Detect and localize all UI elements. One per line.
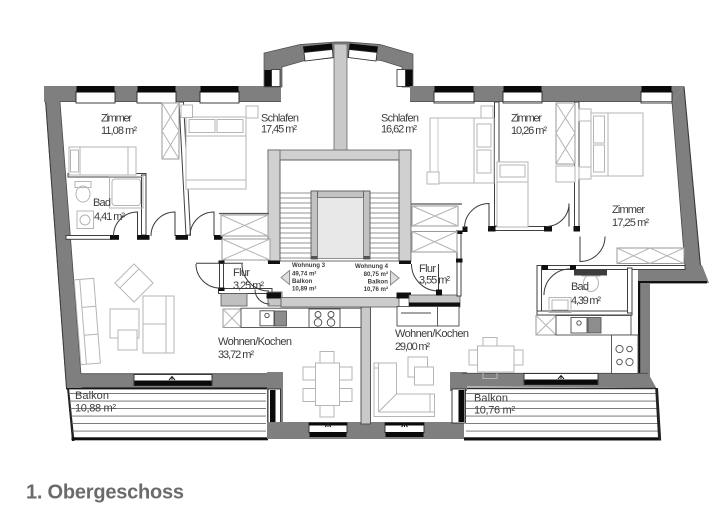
- svg-text:11,08 m²: 11,08 m²: [101, 125, 137, 137]
- svg-text:3,25 m²: 3,25 m²: [233, 280, 264, 292]
- svg-text:3,55 m²: 3,55 m²: [419, 275, 450, 287]
- svg-text:10,88 m²: 10,88 m²: [75, 403, 116, 415]
- svg-text:Balkon: Balkon: [368, 279, 389, 286]
- svg-text:29,00 m²: 29,00 m²: [395, 341, 430, 353]
- svg-text:16,62 m²: 16,62 m²: [381, 124, 417, 136]
- svg-text:4,39 m²: 4,39 m²: [571, 295, 601, 307]
- svg-text:17,25 m²: 17,25 m²: [612, 217, 649, 229]
- svg-text:Bad: Bad: [93, 197, 111, 209]
- svg-text:10,89 m²: 10,89 m²: [292, 286, 316, 293]
- svg-text:Zimmer: Zimmer: [612, 204, 645, 216]
- svg-text:10,26 m²: 10,26 m²: [511, 125, 547, 137]
- svg-text:Balkon: Balkon: [474, 393, 508, 405]
- svg-text:Wohnen/Kochen: Wohnen/Kochen: [218, 336, 292, 348]
- svg-text:Balkon: Balkon: [292, 278, 313, 285]
- svg-text:49,74 m²: 49,74 m²: [292, 271, 316, 278]
- svg-text:Zimmer: Zimmer: [511, 113, 542, 125]
- svg-text:4,41 m²: 4,41 m²: [94, 211, 125, 223]
- svg-text:10,76 m²: 10,76 m²: [364, 286, 388, 293]
- svg-text:Flur: Flur: [419, 263, 436, 275]
- svg-text:10,76 m²: 10,76 m²: [474, 405, 515, 417]
- svg-text:Wohnung 3: Wohnung 3: [292, 262, 326, 269]
- svg-text:33,72 m²: 33,72 m²: [218, 349, 254, 361]
- svg-text:Wohnen/Kochen: Wohnen/Kochen: [395, 328, 469, 340]
- svg-text:17,45 m²: 17,45 m²: [261, 124, 297, 136]
- svg-text:Zimmer: Zimmer: [101, 113, 132, 125]
- svg-text:1. Obergeschoss: 1. Obergeschoss: [26, 482, 184, 504]
- svg-text:Flur: Flur: [233, 267, 250, 279]
- svg-text:Wohnung 4: Wohnung 4: [355, 263, 389, 270]
- svg-text:Balkon: Balkon: [75, 390, 109, 402]
- svg-text:80,75 m²: 80,75 m²: [364, 271, 388, 278]
- svg-text:Bad: Bad: [571, 281, 589, 293]
